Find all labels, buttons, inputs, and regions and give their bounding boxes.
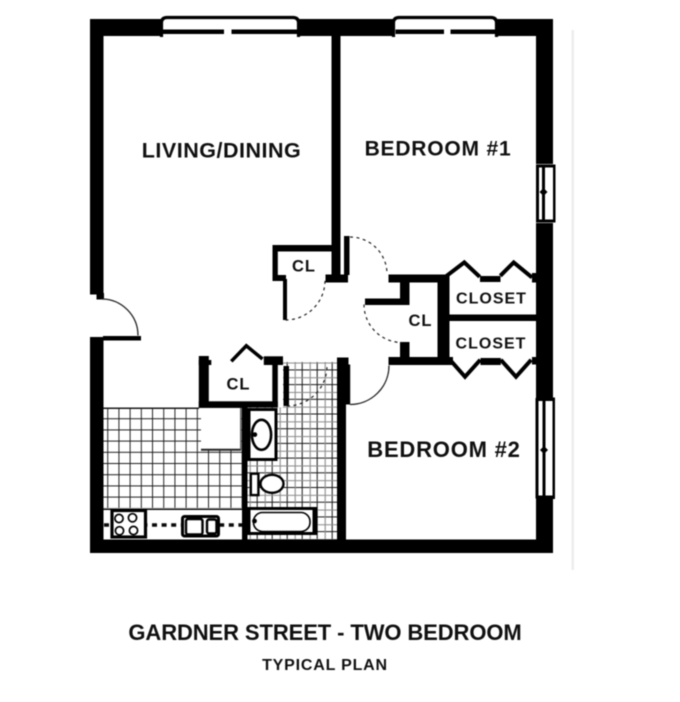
svg-text:LIVING/DINING: LIVING/DINING bbox=[142, 139, 301, 163]
svg-text:TYPICAL PLAN: TYPICAL PLAN bbox=[262, 657, 388, 674]
svg-text:CL: CL bbox=[409, 312, 433, 330]
svg-text:BEDROOM #1: BEDROOM #1 bbox=[365, 138, 512, 161]
svg-text:CL: CL bbox=[292, 258, 316, 276]
svg-text:CL: CL bbox=[227, 376, 251, 394]
svg-text:CLOSET: CLOSET bbox=[456, 291, 527, 308]
svg-text:GARDNER STREET - TWO BEDROOM: GARDNER STREET - TWO BEDROOM bbox=[128, 620, 521, 645]
svg-text:CLOSET: CLOSET bbox=[456, 336, 527, 353]
svg-text:BEDROOM #2: BEDROOM #2 bbox=[367, 437, 520, 462]
